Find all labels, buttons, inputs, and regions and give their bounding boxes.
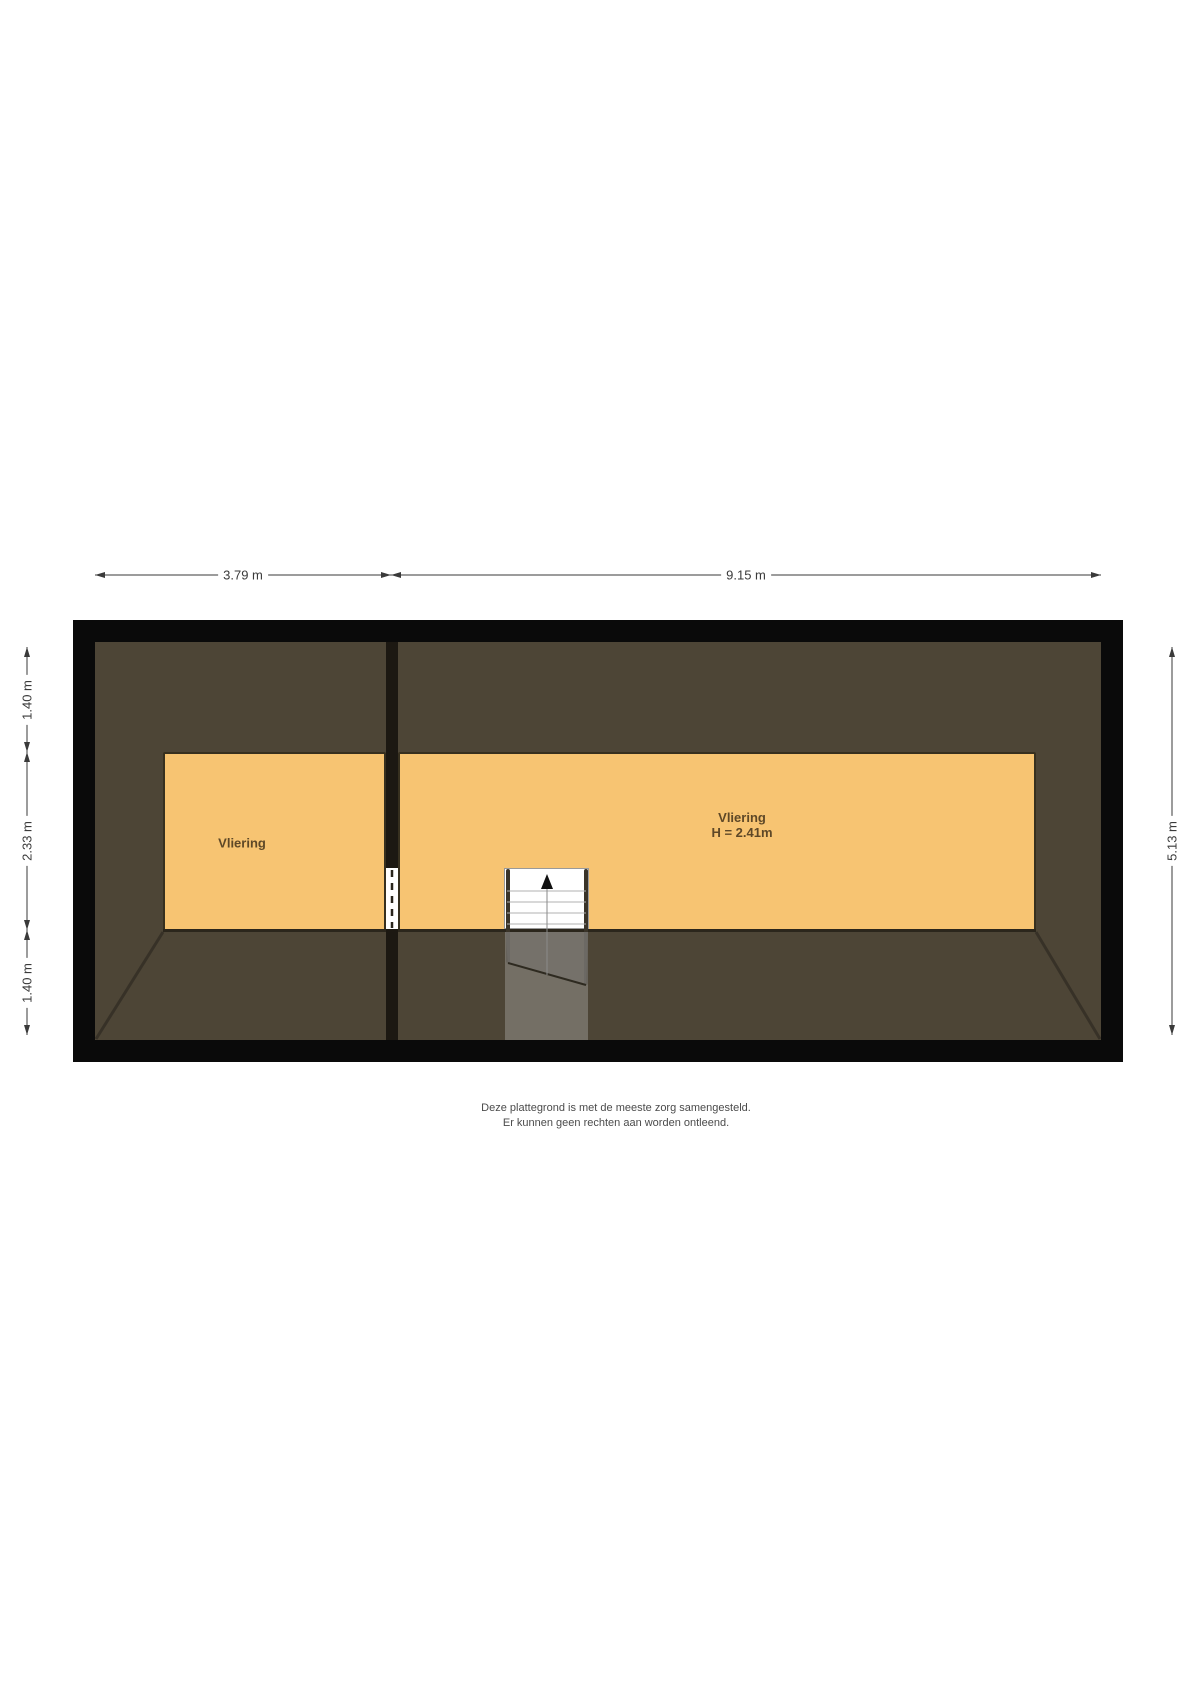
arrowhead-icon <box>1169 1025 1175 1035</box>
arrowhead-icon <box>391 572 401 578</box>
dimension-label-top-right: 9.15 m <box>721 568 771 583</box>
arrowhead-icon <box>1091 572 1101 578</box>
room-vliering-left <box>163 752 386 932</box>
arrowhead-icon <box>24 647 30 657</box>
staircase <box>504 868 589 929</box>
stair-rail-right <box>584 869 588 985</box>
arrowhead-icon <box>24 930 30 940</box>
dimension-label-left-middle: 2.33 m <box>20 816 35 866</box>
dimension-label-left-upper: 1.40 m <box>20 675 35 725</box>
wall-opening <box>386 868 398 929</box>
dimension-label-left-lower: 1.40 m <box>20 958 35 1008</box>
room-vliering-right <box>398 752 1036 932</box>
dimension-label-right: 5.13 m <box>1165 816 1180 866</box>
arrowhead-icon <box>24 1025 30 1035</box>
arrowhead-icon <box>24 742 30 752</box>
room-right-height: H = 2.41m <box>711 825 772 840</box>
dimension-label-top-left: 3.79 m <box>218 568 268 583</box>
disclaimer-line-1: Deze plattegrond is met de meeste zorg s… <box>481 1101 751 1116</box>
arrowhead-icon <box>95 572 105 578</box>
stair-rail-left <box>506 869 510 963</box>
room-floor-edge-line <box>163 929 1036 932</box>
arrowhead-icon <box>1169 647 1175 657</box>
arrowhead-icon <box>24 920 30 930</box>
divider-wall <box>386 642 398 1040</box>
room-left-label: Vliering <box>218 836 266 851</box>
disclaimer-line-2: Er kunnen geen rechten aan worden ontlee… <box>481 1116 751 1131</box>
room-right-label: Vliering H = 2.41m <box>711 810 772 840</box>
arrowhead-icon <box>381 572 391 578</box>
disclaimer: Deze plattegrond is met de meeste zorg s… <box>481 1101 751 1131</box>
room-right-name: Vliering <box>711 810 772 825</box>
floorplan-page: { "plan": { "type": "floorplan-attic", "… <box>0 0 1200 1697</box>
arrowhead-icon <box>24 752 30 762</box>
